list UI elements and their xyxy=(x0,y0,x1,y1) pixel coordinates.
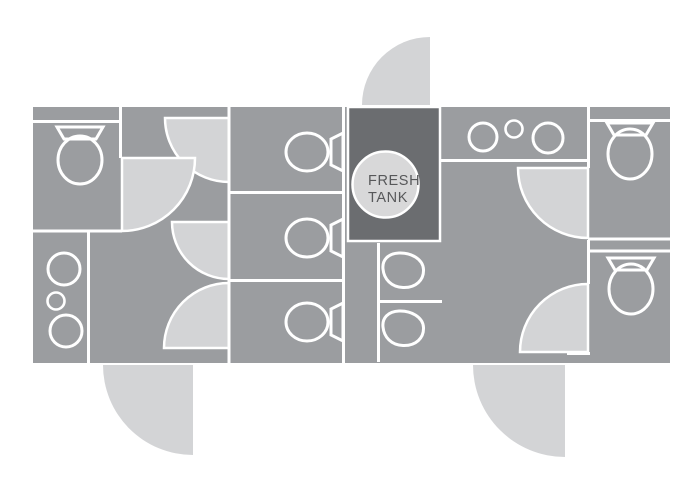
fresh-tank-label-line2: TANK xyxy=(368,190,408,206)
floor-plan-svg: FRESH TANK xyxy=(0,0,700,500)
entry-door-swing-bottom-left xyxy=(103,365,193,455)
fresh-tank: FRESH TANK xyxy=(348,107,440,241)
fresh-tank-label-line1: FRESH xyxy=(368,173,420,189)
floor-plan: FRESH TANK xyxy=(0,0,700,500)
entry-door-swing-top xyxy=(362,37,430,105)
entry-door-swing-bottom-right xyxy=(473,365,565,457)
